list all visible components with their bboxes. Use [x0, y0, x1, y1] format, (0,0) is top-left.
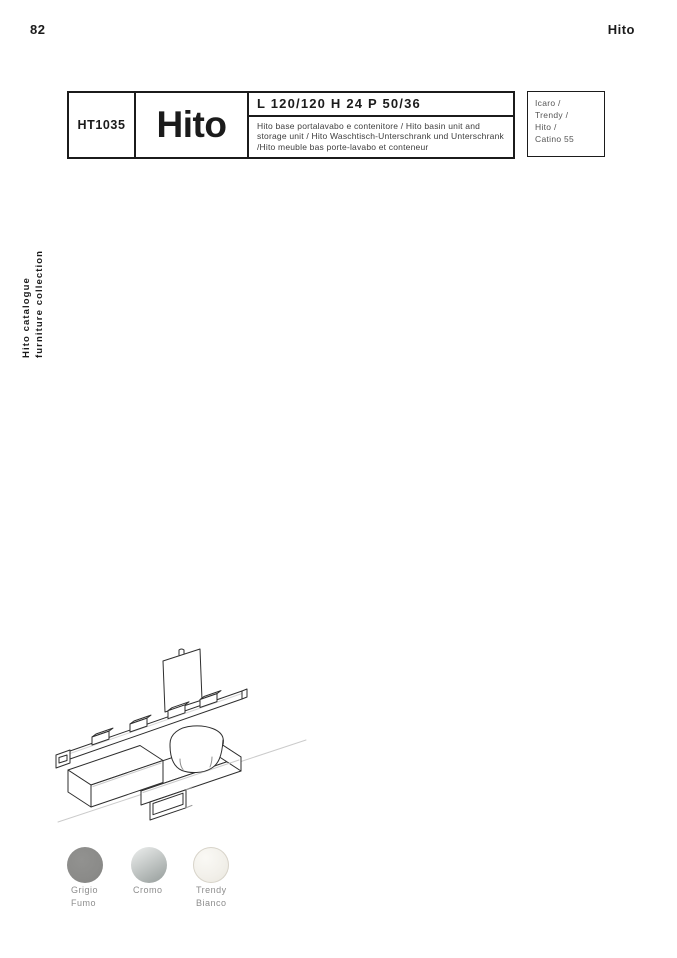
- rail-end-cap: [56, 750, 70, 768]
- product-dimensions: L 120/120 H 24 P 50/36: [249, 93, 513, 117]
- product-code: HT1035: [69, 93, 136, 157]
- product-info-cell: L 120/120 H 24 P 50/36 Hito base portala…: [249, 93, 513, 157]
- finish-label: Grigio Fumo: [71, 884, 98, 910]
- finish-swatch-trendy-bianco: [193, 847, 229, 883]
- rail-end-right: [242, 689, 247, 699]
- finish-swatch-grigio-fumo: [67, 847, 103, 883]
- compatible-model: Trendy /: [535, 109, 604, 121]
- header-brand-label: Hito: [608, 22, 635, 37]
- compatible-model: Catino 55: [535, 133, 604, 145]
- finish-label: Trendy Bianco: [196, 884, 227, 910]
- product-header-table: HT1035 Hito L 120/120 H 24 P 50/36 Hito …: [67, 91, 515, 159]
- basin: [170, 726, 223, 773]
- side-vertical-label: Hito catalogue furniture collection: [21, 238, 47, 358]
- page-number: 82: [30, 22, 45, 37]
- product-name-logo: Hito: [136, 93, 249, 157]
- finish-label: Cromo: [133, 884, 163, 897]
- finish-swatch-cromo: [131, 847, 167, 883]
- product-description: Hito base portalavabo e contenitore / Hi…: [249, 117, 513, 157]
- compatible-model: Hito /: [535, 121, 604, 133]
- catalogue-page: 82 Hito HT1035 Hito L 120/120 H 24 P 50/…: [0, 0, 677, 958]
- mirror-panel: [163, 649, 202, 712]
- product-drawing: [40, 630, 320, 830]
- compatible-models-box: Icaro / Trendy / Hito / Catino 55: [527, 91, 605, 157]
- compatible-model: Icaro /: [535, 97, 604, 109]
